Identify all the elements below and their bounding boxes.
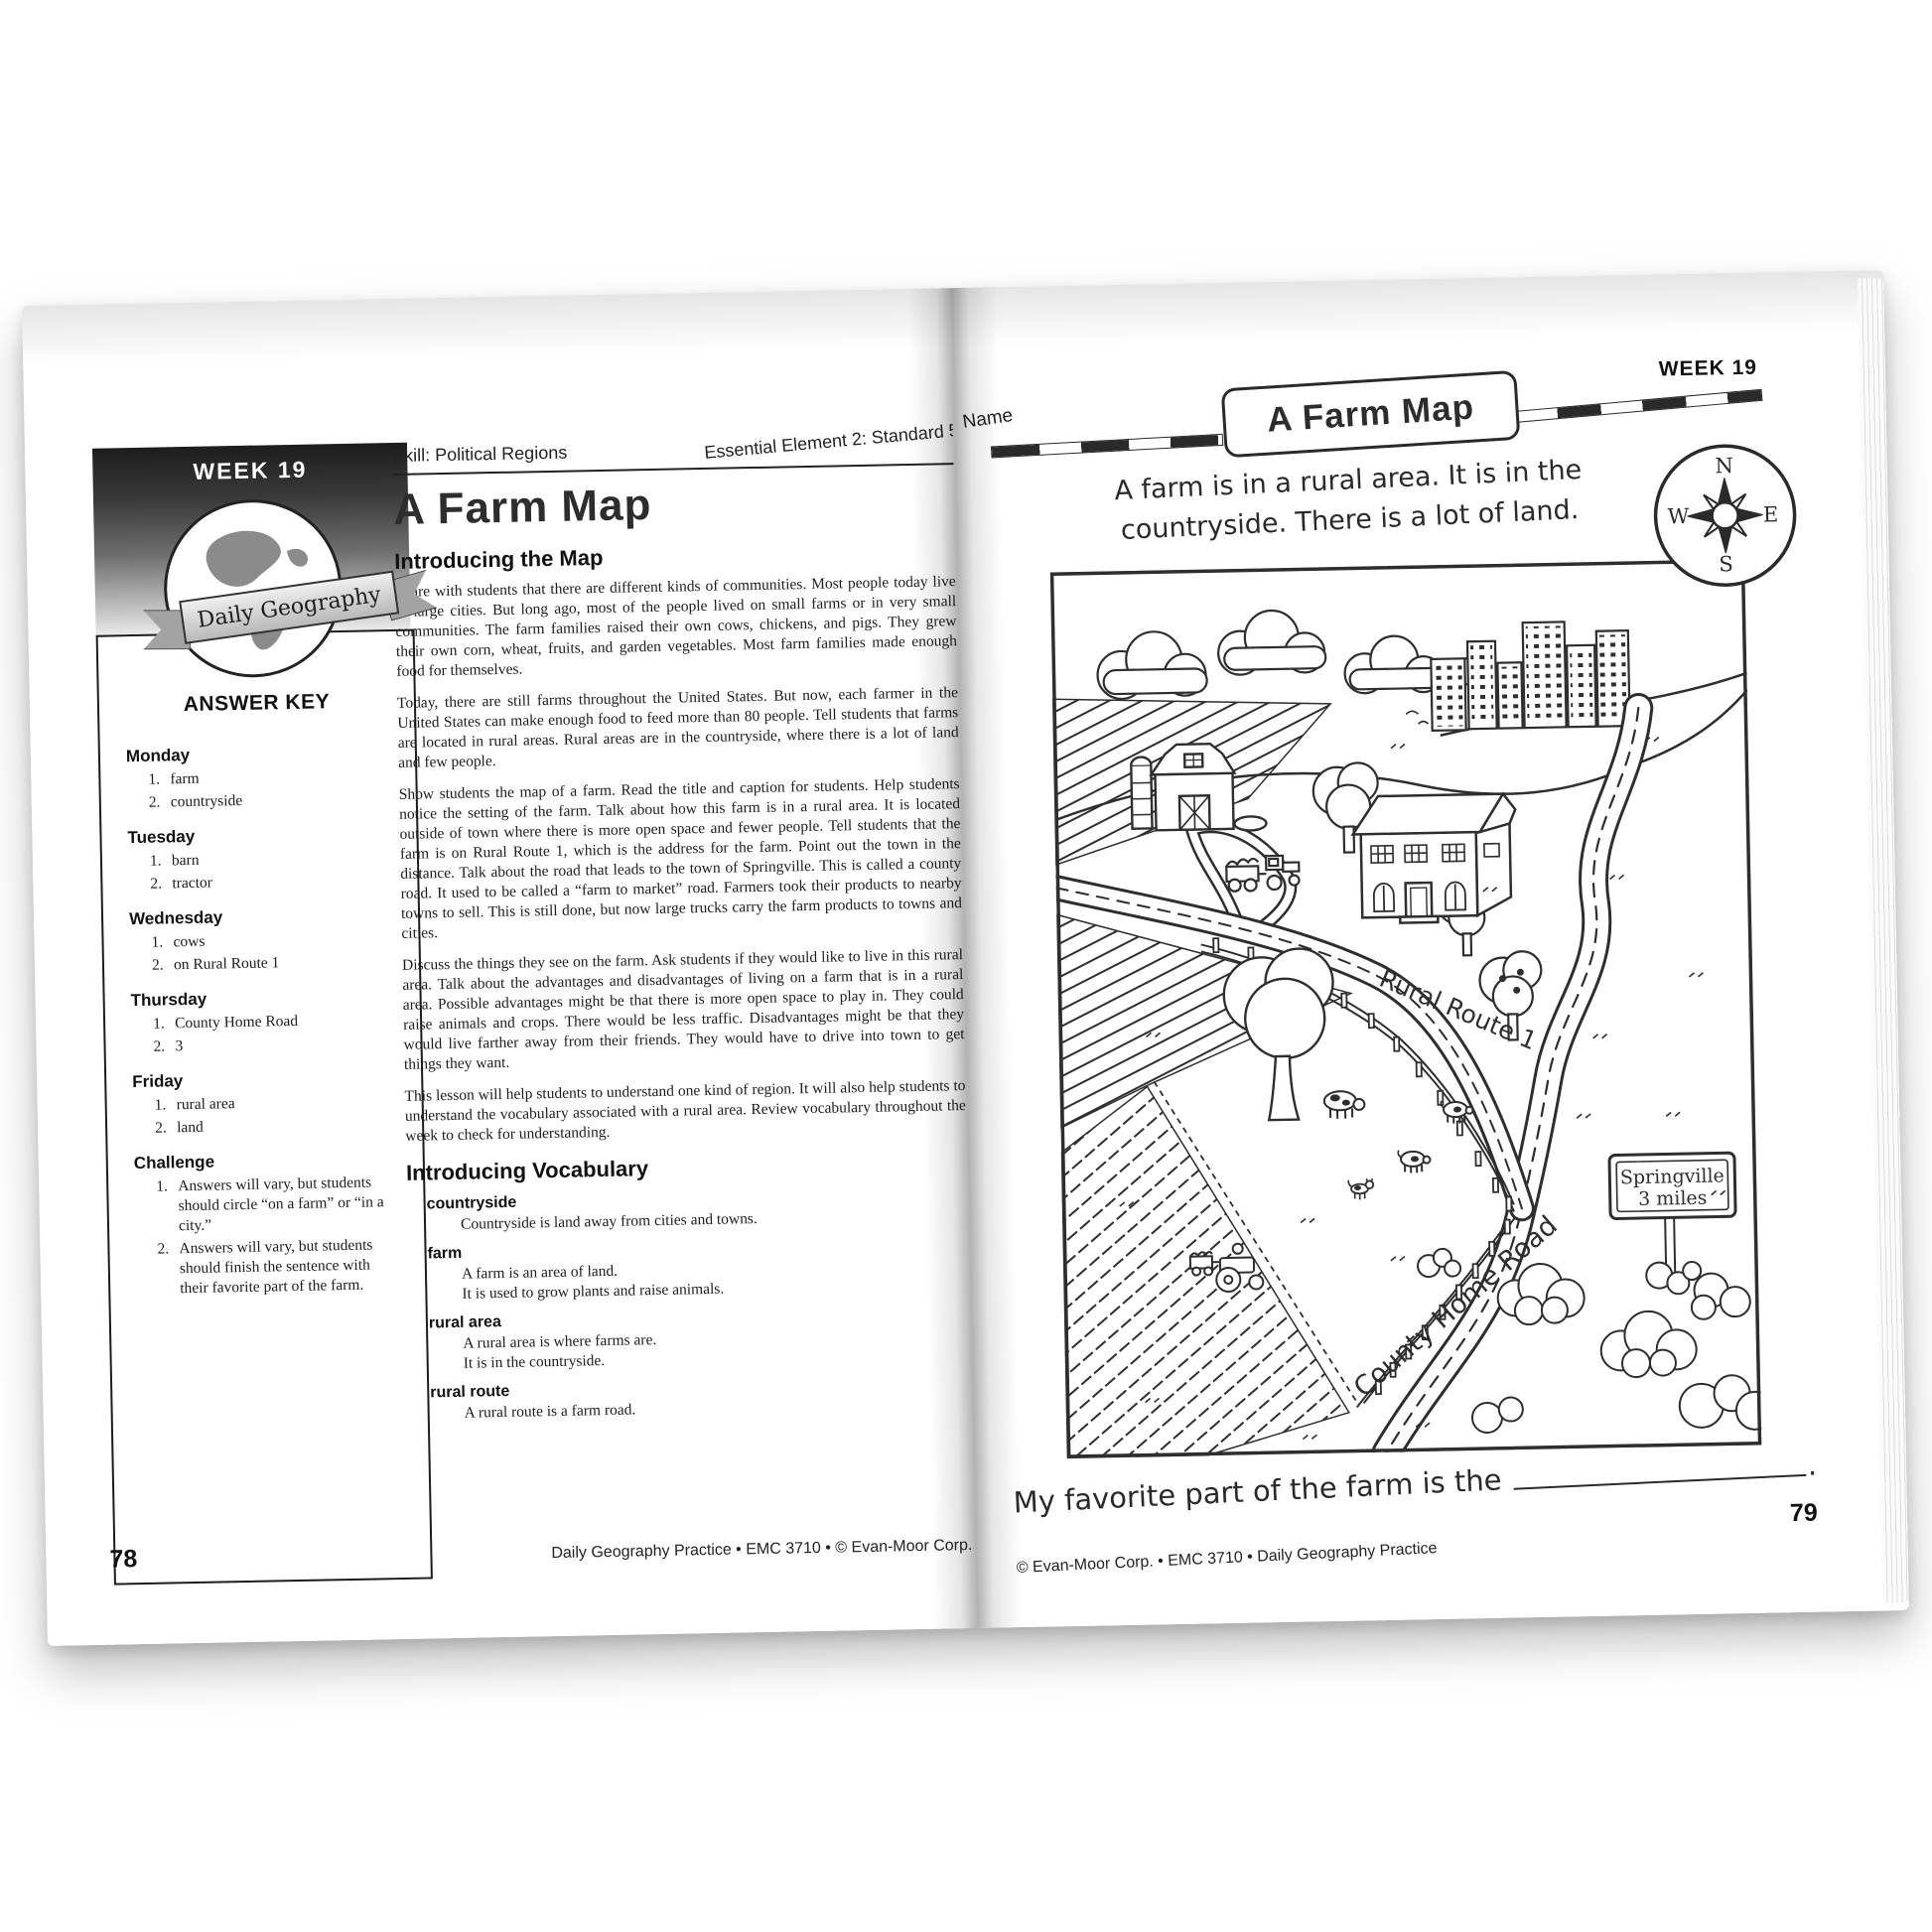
page-number-78: 78 [109,1545,137,1575]
answer-day: Wednesday [129,904,395,929]
standard-label: Essential Element 2: Standard 5 [703,420,959,464]
lesson-paragraph: Share with students that there are diffe… [395,572,958,682]
springville-sign-line2: 3 miles [1638,1187,1708,1210]
right-page: WEEK 19 Name A Farm Map A farm is in a r… [950,270,1909,1628]
vocab-heading: Introducing Vocabulary [406,1150,967,1186]
answer-day: Challenge [134,1149,400,1173]
answer-item: barn [150,847,394,872]
answer-item: farm [148,765,392,790]
lesson-column: Skill: Political Regions Essential Eleme… [392,435,972,1425]
lesson-paragraph: Show students the map of a farm. Read th… [399,774,963,944]
week-badge-label: WEEK 19 [92,455,407,487]
answer-item: cows [151,928,395,953]
page-number-79: 79 [1790,1499,1818,1529]
answer-item: rural area [155,1091,399,1116]
open-book: WEEK 19 Daily Geography ANSWER KEY Monda… [22,270,1909,1646]
vocab-list: countryside Countryside is land away fro… [426,1185,971,1424]
prompt-text: My favorite part of the farm is the [1013,1462,1502,1519]
right-footer: © Evan-Moor Corp. • EMC 3710 • Daily Geo… [1016,1540,1437,1578]
lesson-paragraph: Today, there are still farms throughout … [397,683,959,773]
answer-item: Answers will vary, but students should f… [157,1235,402,1300]
skill-label: Skill: Political Regions [392,443,567,467]
answer-day: Friday [132,1067,398,1092]
decorative-stripe-right [1514,389,1762,423]
compass-south-label: S [1719,552,1733,576]
lesson-paragraph: This lesson will help students to unders… [404,1076,966,1147]
scan-background: WEEK 19 Daily Geography ANSWER KEY Monda… [0,0,1932,1932]
answer-key-body: Monday farm countryside Tuesday barn tra… [125,727,402,1303]
answer-item: Answers will vary, but students should c… [156,1173,401,1237]
compass-icon: N E S W [1648,439,1802,593]
prompt-period: . [1807,1448,1818,1481]
answer-key-box: ANSWER KEY Monday farm countryside Tuesd… [96,629,433,1586]
answer-item: County Home Road [153,1010,397,1035]
worksheet-title: A Farm Map [1266,388,1475,441]
answer-day: Monday [126,742,392,766]
worksheet-title-banner: A Farm Map [1221,370,1521,459]
intro-map-heading: Introducing the Map [394,538,955,575]
lesson-title: A Farm Map [393,475,955,535]
left-page: WEEK 19 Daily Geography ANSWER KEY Monda… [22,288,976,1646]
answer-item: on Rural Route 1 [152,951,396,976]
farm-map-illustration: Springville 3 miles Rural Route 1 County… [1050,559,1762,1458]
name-field-label: Name [961,405,1014,434]
compass-north-label: N [1715,454,1733,478]
answer-day: Thursday [130,986,396,1011]
week-label: WEEK 19 [1659,356,1758,382]
answer-key-title: ANSWER KEY [99,689,414,719]
compass-east-label: E [1763,502,1779,526]
springville-sign-line1: Springville [1620,1165,1725,1188]
map-caption: A farm is in a rural area. It is in the … [1067,449,1631,554]
answer-item: land [155,1114,399,1139]
compass-rose: N E S W [1648,439,1802,593]
left-footer: Daily Geography Practice • EMC 3710 • © … [413,1537,972,1566]
answer-item: tractor [150,870,394,895]
compass-west-label: W [1668,504,1690,528]
answer-blank-line[interactable] [1512,1445,1806,1490]
decorative-stripe-left [991,434,1223,459]
lesson-paragraph: Discuss the things they see on the farm.… [402,945,965,1075]
answer-item: countryside [149,788,393,813]
farm-map-drawing: Springville 3 miles Rural Route 1 County… [1050,559,1762,1458]
answer-day: Tuesday [127,823,393,848]
answer-item: 3 [153,1033,397,1057]
